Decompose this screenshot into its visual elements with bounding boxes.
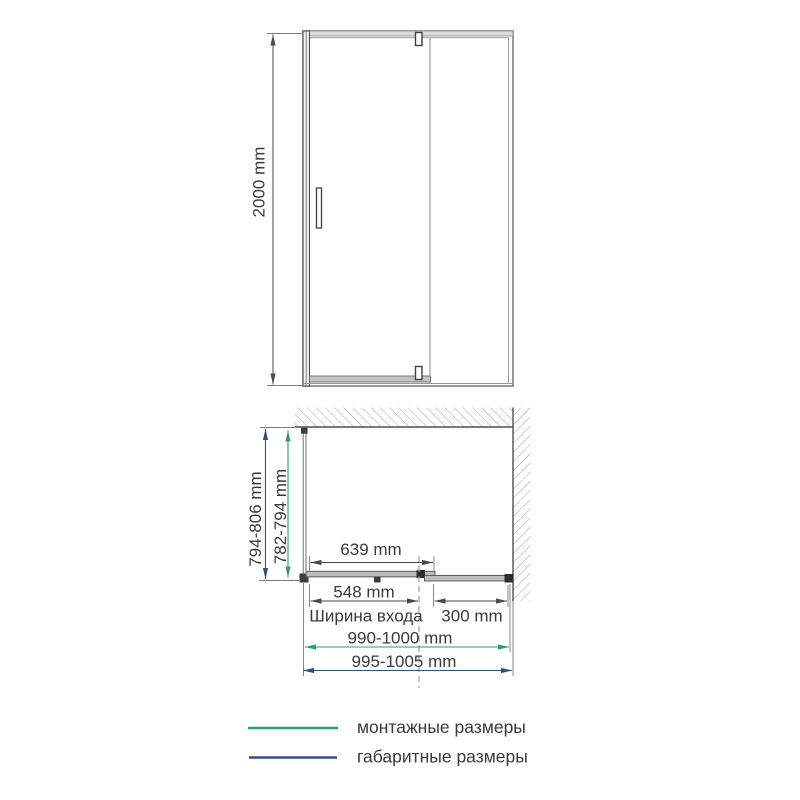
overall-depth-label: 794-806 mm	[246, 471, 265, 566]
front-frame-outline	[303, 31, 513, 386]
back-wall-hatch	[295, 408, 513, 428]
front-elevation-view: 2000 mm	[250, 31, 514, 386]
side-glass-top-wall-profile	[301, 428, 308, 434]
bottom-hinge-bracket	[416, 367, 423, 380]
drawing-svg: 2000 mm 639 mm 548 mm Ширина входа	[0, 0, 800, 800]
door-handle	[317, 188, 322, 228]
entry-width-label: 548 mm	[333, 583, 394, 602]
plan-view: 639 mm 548 mm Ширина входа 300 mm 990-10…	[246, 408, 531, 689]
shower-door-technical-drawing: 2000 mm 639 mm 548 mm Ширина входа	[0, 0, 800, 800]
plan-pivot-block	[417, 570, 426, 578]
legend-mounting-label: монтажные размеры	[357, 717, 526, 737]
door-span-label: 639 mm	[340, 540, 401, 559]
height-dim-label: 2000 mm	[250, 147, 269, 218]
top-hinge-bracket	[416, 33, 423, 46]
side-wall-hatch	[513, 408, 531, 602]
plan-fixed-panel-bar	[425, 575, 513, 581]
fixed-width-label: 300 mm	[441, 607, 502, 626]
legend-overall-label: габаритные размеры	[357, 747, 528, 767]
front-top-profile	[303, 31, 513, 36]
mounting-depth-label: 782-794 mm	[271, 469, 290, 564]
overall-width-label: 995-1005 mm	[352, 652, 457, 671]
entry-width-caption: Ширина входа	[309, 607, 423, 626]
plan-door-panel-bar	[306, 571, 435, 577]
mounting-width-label: 990-1000 mm	[348, 629, 453, 648]
front-bottom-door-rail	[310, 376, 431, 382]
legend: монтажные размеры габаритные размеры	[248, 717, 528, 767]
plan-right-wall-profile-block	[505, 574, 514, 583]
